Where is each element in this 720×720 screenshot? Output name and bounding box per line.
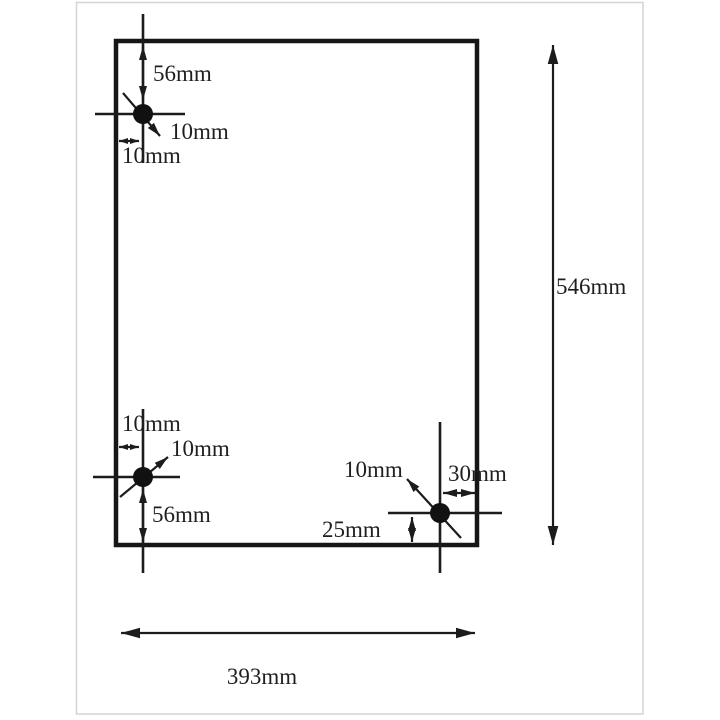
drawing-canvas: 56mm 10mm 10mm 10mm 10mm 56mm 10mm 30mm — [0, 0, 720, 720]
image-frame — [77, 3, 644, 715]
hole-top-left — [133, 104, 153, 124]
panel-outline — [116, 41, 477, 545]
hole-bottom-left-bottom-offset-label: 56mm — [152, 502, 211, 527]
hole-group-bottom-left: 10mm 10mm 56mm — [93, 409, 230, 573]
hole-bottom-right-right-offset-label: 30mm — [448, 461, 507, 486]
hole-bottom-left-diameter-label: 10mm — [171, 436, 230, 461]
drilling-diagram: 56mm 10mm 10mm 10mm 10mm 56mm 10mm 30mm — [0, 0, 720, 720]
hole-bottom-right — [430, 503, 450, 523]
hole-bottom-left — [133, 467, 153, 487]
hole-bottom-right-bottom-offset-label: 25mm — [322, 517, 381, 542]
hole-bottom-right-diameter-label: 10mm — [344, 457, 403, 482]
hole-top-left-left-offset-label: 10mm — [122, 143, 181, 168]
hole-top-left-top-offset-label: 56mm — [153, 61, 212, 86]
hole-bottom-left-left-offset-label: 10mm — [122, 411, 181, 436]
panel-height-label: 546mm — [556, 274, 626, 299]
panel-width-label: 393mm — [227, 664, 297, 689]
hole-top-left-diameter-label: 10mm — [170, 119, 229, 144]
